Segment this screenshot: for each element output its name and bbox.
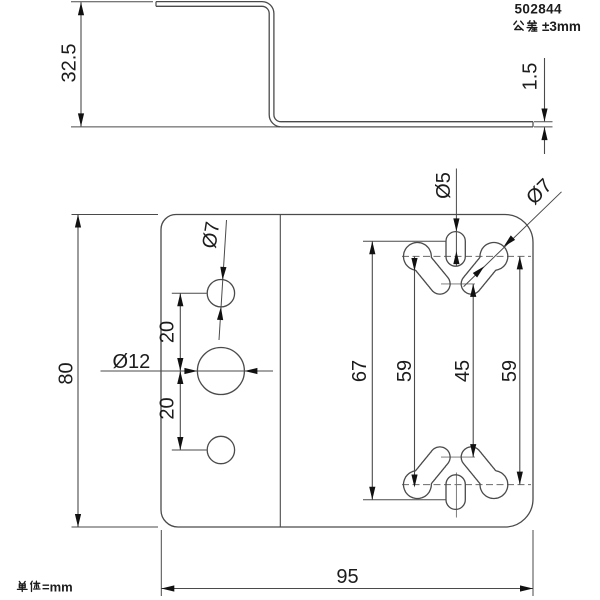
svg-text:502844: 502844 [515,1,563,16]
svg-text:1.5: 1.5 [520,63,542,91]
svg-text:80: 80 [56,362,78,384]
svg-text:32.5: 32.5 [59,44,81,83]
svg-text:95: 95 [336,566,358,588]
svg-text:59: 59 [394,360,416,382]
svg-text:=mm: =mm [42,580,73,595]
svg-text:Ø7: Ø7 [199,220,225,250]
svg-text:Ø5: Ø5 [433,172,455,199]
svg-text:59: 59 [499,360,521,382]
svg-text:Ø12: Ø12 [113,351,151,373]
svg-text:45: 45 [452,360,474,382]
svg-text:67: 67 [349,360,371,382]
svg-text:±3mm: ±3mm [542,19,581,34]
svg-text:20: 20 [157,397,179,419]
svg-text:Ø7: Ø7 [522,175,556,209]
svg-text:20: 20 [157,321,179,343]
